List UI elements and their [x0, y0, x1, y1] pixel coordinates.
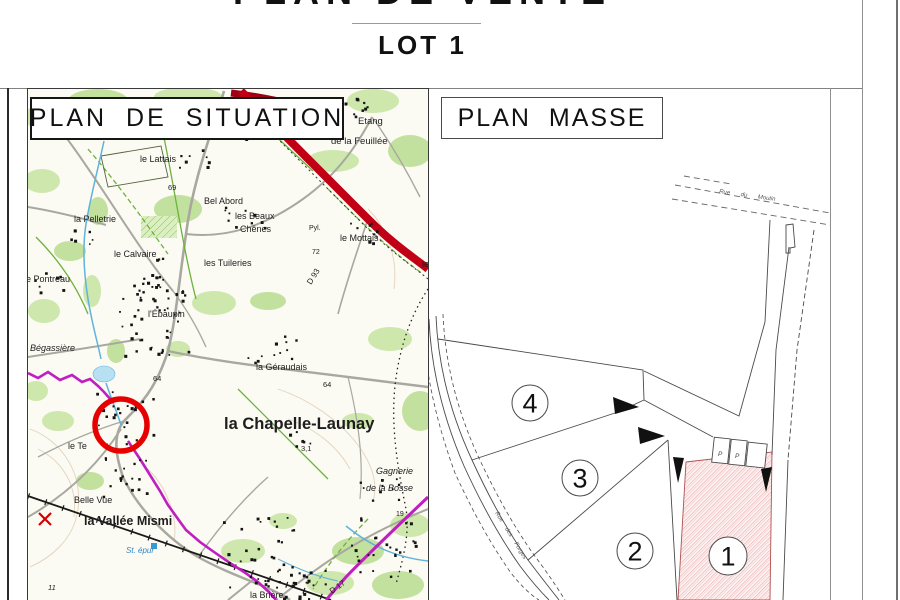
lot-number: 3	[572, 464, 587, 494]
map-label: les Tuileries	[204, 258, 252, 268]
street-rue-des-forges	[429, 314, 565, 600]
map-label: le Mottais	[340, 233, 379, 243]
map-label: de la Bosse	[366, 483, 413, 493]
lot-2-marker: 2	[617, 533, 653, 569]
map-label: la Brière	[250, 590, 284, 600]
masse-plan-drawing: 4321 Rue du MoulinRue des Forges PP	[429, 89, 830, 600]
lot-1-marker: 1	[709, 537, 747, 575]
map-label: le Te	[68, 441, 87, 451]
map-labels: le Lattaisle TillonEtangde la Feuillée69…	[28, 116, 428, 600]
map-label: la Chapelle-Launay	[224, 415, 375, 433]
street-label: Rue du Moulin	[719, 189, 777, 203]
map-label: le Calvaire	[114, 249, 157, 259]
map-label: Bel Abord	[204, 196, 243, 206]
frame-left-border	[7, 88, 9, 600]
title-separator	[352, 23, 481, 24]
map-label: la Géraudais	[256, 362, 308, 372]
lot-number: 4	[522, 389, 537, 419]
map-label: Bégassière	[30, 343, 75, 353]
parking-letter: P	[718, 451, 723, 458]
map-label: les Beaux	[235, 211, 275, 221]
map-label: le Lattais	[140, 154, 177, 164]
masse-panel-title: PLAN MASSE	[441, 97, 663, 139]
page-title: PLAN DE VENTE	[0, 0, 845, 11]
map-label: 72	[312, 249, 320, 256]
lot-4-marker: 4	[512, 385, 548, 421]
margin-rule-inner	[862, 0, 863, 600]
parking-letter: P	[735, 453, 740, 460]
lot1-highlighted-parcel	[678, 452, 772, 600]
margin-rule-outer	[896, 0, 898, 600]
map-label: Pyl.	[309, 225, 321, 232]
map-label: 64	[323, 380, 331, 389]
lot-number: 1	[720, 542, 735, 572]
masse-right-border	[830, 88, 831, 600]
map-label: Belle Vue	[74, 495, 112, 505]
map-label: le Pontreau	[28, 274, 70, 284]
map-label: 19	[396, 511, 404, 518]
map-label: la Vallée Mismi	[84, 514, 172, 528]
map-label: Etang	[358, 116, 383, 127]
street-rue-du-moulin	[672, 176, 830, 225]
map-label: 69	[168, 183, 176, 192]
pond	[93, 366, 115, 382]
situation-map-panel: le Lattaisle TillonEtangde la Feuillée69…	[27, 88, 429, 600]
situation-map-image: le Lattaisle TillonEtangde la Feuillée69…	[28, 89, 428, 600]
situation-panel-title: PLAN DE SITUATION	[30, 97, 344, 140]
lot-number: 2	[627, 537, 642, 567]
map-label: D 93	[305, 266, 322, 286]
map-label: l'Ébaupin	[148, 309, 185, 319]
map-label: Chênes	[240, 224, 272, 234]
railway	[28, 496, 331, 600]
lot-subtitle: LOT 1	[0, 30, 845, 61]
map-label: St. épur	[126, 546, 154, 555]
map-label: 3,1	[301, 444, 311, 453]
map-label: le	[422, 259, 428, 269]
map-label: 11	[48, 583, 56, 592]
plan-de-vente-page: PLAN DE VENTE LOT 1	[0, 0, 900, 600]
masse-plan-panel: 4321 Rue du MoulinRue des Forges PP PLAN…	[429, 89, 830, 600]
map-label: la Pelletrie	[74, 214, 116, 224]
map-label: 64	[153, 374, 161, 383]
lot-3-marker: 3	[562, 460, 598, 496]
map-label: Gagnerie	[376, 466, 413, 476]
